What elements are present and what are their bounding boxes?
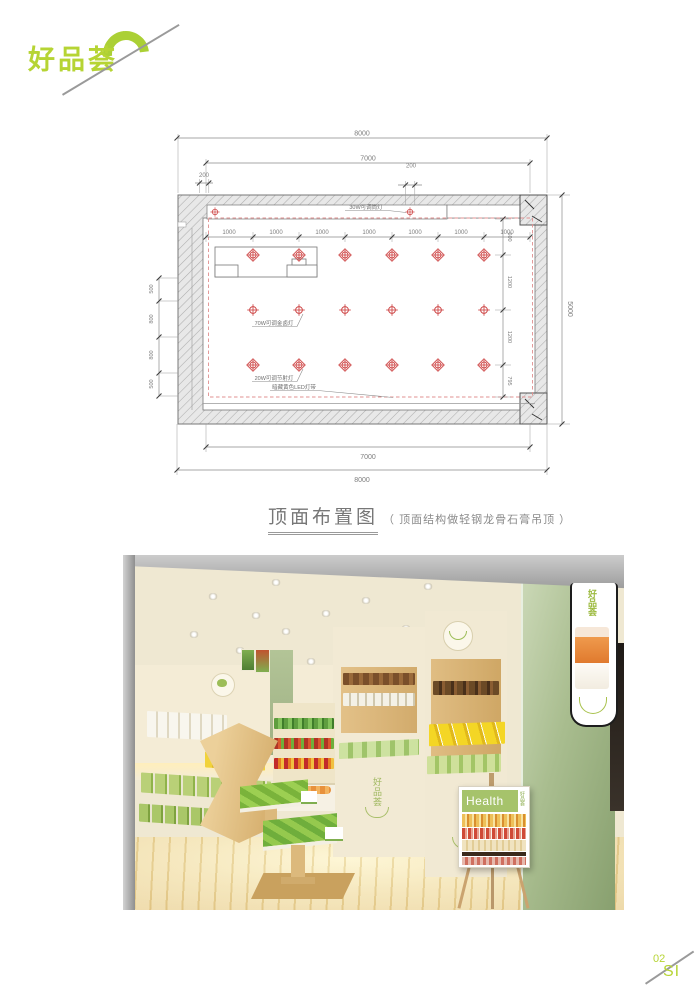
downlight — [423, 583, 433, 590]
dim-offset-mid: 200 — [406, 164, 417, 170]
cabinet-b-nut-row — [433, 681, 499, 695]
svg-text:1000: 1000 — [408, 230, 422, 236]
downlight — [189, 631, 199, 638]
lightbox-smile-arc — [579, 697, 607, 714]
health-poster: Health 好品荟 — [458, 786, 530, 868]
produce-row-greens — [274, 718, 334, 729]
svg-text:1000: 1000 — [454, 230, 468, 236]
label-led-strip: 暗藏黄色LED灯带 — [272, 383, 316, 391]
svg-text:795: 795 — [506, 376, 512, 385]
downlight — [321, 610, 331, 617]
svg-text:800: 800 — [149, 314, 155, 323]
svg-text:1200: 1200 — [506, 331, 512, 343]
page-mark: SI — [663, 963, 680, 981]
svg-text:600: 600 — [506, 232, 512, 241]
interior-render-photo: 好品荟 好品荟 好品荟 Health 好品荟 — [123, 555, 624, 910]
display-table-pedestal — [291, 845, 305, 879]
svg-text:500: 500 — [149, 379, 155, 388]
poster-food-row — [462, 828, 526, 839]
plan-caption: 顶面布置图 （ 顶面结构做轻钢龙骨石膏吊顶 ） — [268, 502, 571, 535]
poster-title: Health — [466, 794, 504, 808]
cabinet-b-green-row — [427, 754, 501, 775]
wall-picture — [241, 649, 255, 671]
downlight — [271, 579, 281, 586]
badge-fruit-glyph — [217, 679, 227, 687]
label-downlight: 30W可调筒灯 — [349, 203, 383, 211]
downlight — [361, 597, 371, 604]
plan-caption-title: 顶面布置图 — [268, 502, 378, 535]
pedestal-foot — [281, 877, 315, 884]
cabinet-brand-mark: 好品荟 — [371, 777, 384, 807]
poster-food-row — [462, 852, 526, 856]
produce-row-peppers — [274, 738, 334, 749]
downlight — [281, 628, 291, 635]
wall-picture — [255, 649, 270, 673]
easel-leg — [491, 861, 494, 909]
svg-text:1000: 1000 — [315, 230, 329, 236]
svg-text:1200: 1200 — [506, 276, 512, 288]
dim-outer-height: 5000 — [566, 301, 573, 317]
dim-bottom-outer: 8000 — [354, 477, 370, 484]
svg-text:1000: 1000 — [362, 230, 376, 236]
poster-header: Health — [462, 790, 518, 812]
lightbox-fruit-photo — [575, 627, 609, 689]
svg-text:1000: 1000 — [222, 230, 236, 236]
brand-logo-text: 好品荟 — [28, 38, 118, 77]
poster-food-row — [462, 857, 526, 865]
cabinet-a-box-row — [343, 673, 415, 685]
dim-inner-width: 7000 — [360, 156, 376, 163]
table-sign-card — [301, 791, 317, 804]
poster-side-text: 好品荟 — [519, 791, 526, 806]
table-sign-card — [325, 827, 343, 841]
dim-bottom-inner: 7000 — [360, 454, 376, 461]
svg-text:500: 500 — [149, 284, 155, 293]
dim-outer-width: 8000 — [354, 131, 370, 138]
label-metal-halide: 70W可调金卤灯 — [255, 319, 294, 327]
poster-food-row — [462, 840, 526, 851]
poster-food-row — [462, 814, 526, 827]
hanging-lightbox: 好品荟 — [570, 583, 618, 727]
svg-text:800: 800 — [149, 350, 155, 359]
downlight — [208, 593, 218, 600]
label-spotlight: 20W可调节射灯 — [255, 374, 294, 382]
cabinet-b-mango-row — [429, 722, 505, 747]
plan-caption-note: （ 顶面结构做轻钢龙骨石膏吊顶 ） — [383, 511, 571, 527]
downlight — [251, 612, 261, 619]
produce-row-berries — [274, 758, 334, 769]
left-gray-pillar — [123, 555, 135, 910]
ceiling-plan-drawing: 8000 7000 200 200 1000 1000 1000 1000 10… — [140, 118, 580, 510]
svg-text:1000: 1000 — [269, 230, 283, 236]
page: 好品荟 — [0, 0, 700, 989]
cabinet-a-jar-row — [343, 693, 415, 706]
lightbox-brand-text: 好品荟 — [586, 589, 599, 616]
dim-offset-left: 200 — [199, 173, 210, 179]
downlight — [306, 658, 316, 665]
